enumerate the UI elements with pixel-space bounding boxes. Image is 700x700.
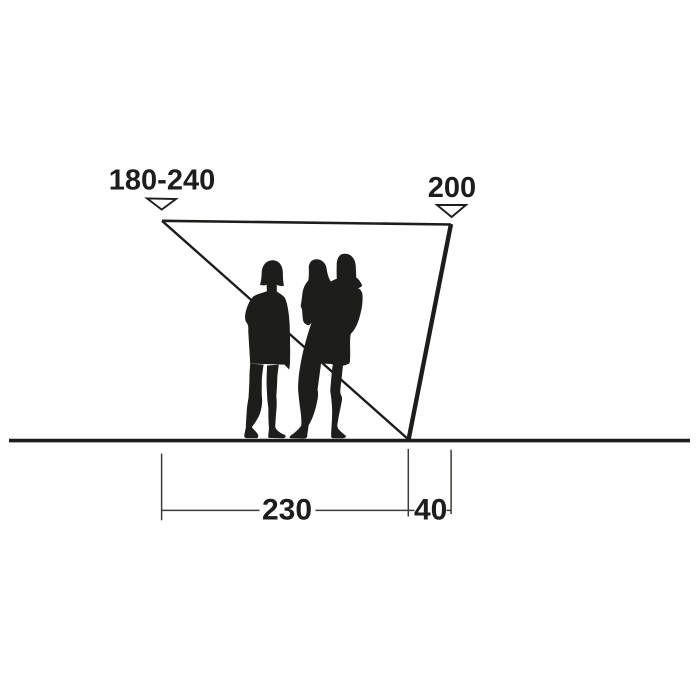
svg-text:200: 200	[428, 172, 476, 204]
svg-text:180-240: 180-240	[109, 165, 215, 197]
svg-text:230: 230	[262, 493, 312, 526]
svg-text:40: 40	[414, 493, 447, 526]
